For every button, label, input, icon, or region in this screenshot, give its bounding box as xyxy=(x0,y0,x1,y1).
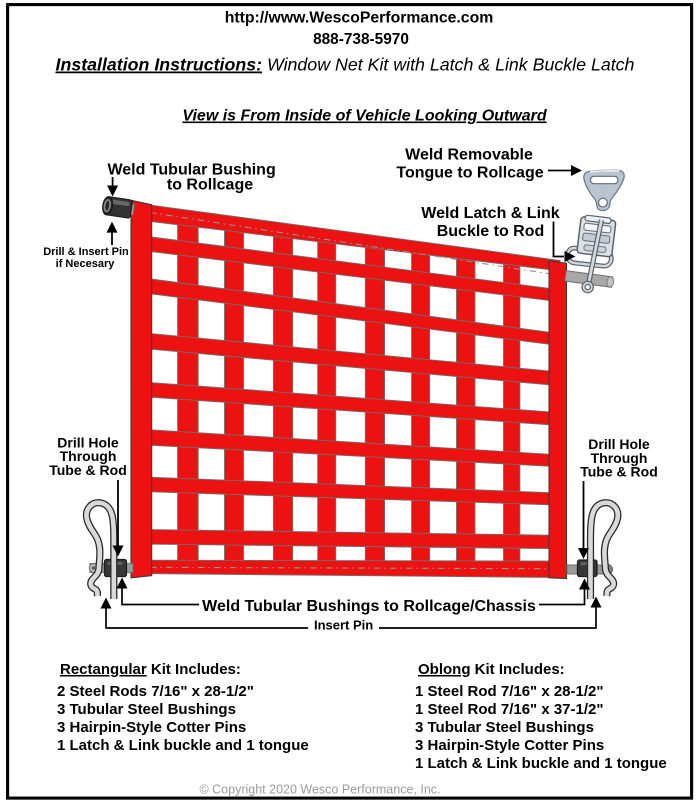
svg-text:Rectangular Kit Includes:: Rectangular Kit Includes: xyxy=(60,661,241,678)
svg-text:Oblong Kit Includes:: Oblong Kit Includes: xyxy=(418,661,565,678)
svg-text:1 Latch & Link buckle and 1 to: 1 Latch & Link buckle and 1 tongue xyxy=(415,755,667,772)
svg-text:Insert Pin: Insert Pin xyxy=(314,618,373,633)
svg-text:3 Hairpin-Style Cotter Pins: 3 Hairpin-Style Cotter Pins xyxy=(415,737,604,754)
svg-text:1 Steel Rod 7/16" x 37-1/2": 1 Steel Rod 7/16" x 37-1/2" xyxy=(415,701,603,718)
svg-text:Tube & Rod: Tube & Rod xyxy=(580,464,658,480)
svg-text:Weld Tubular Bushings to Rollc: Weld Tubular Bushings to Rollcage/Chassi… xyxy=(202,598,536,615)
svg-text:View is From Inside of Vehicle: View is From Inside of Vehicle Looking O… xyxy=(182,108,547,125)
svg-text:1 Steel Rod 7/16" x 28-1/2": 1 Steel Rod 7/16" x 28-1/2" xyxy=(415,683,603,700)
svg-text:888-738-5970: 888-738-5970 xyxy=(313,31,409,48)
svg-text:to Rollcage: to Rollcage xyxy=(167,176,253,193)
svg-text:Drill & Insert Pin: Drill & Insert Pin xyxy=(43,246,129,258)
svg-text:3 Tubular Steel Bushings: 3 Tubular Steel Bushings xyxy=(415,719,594,736)
svg-text:© Copyright 2020 Wesco Perform: © Copyright 2020 Wesco Performance, Inc. xyxy=(199,783,440,797)
svg-text:Tongue to Rollcage: Tongue to Rollcage xyxy=(396,164,543,181)
svg-text:Buckle to Rod: Buckle to Rod xyxy=(437,223,545,240)
svg-text:Weld Latch & Link: Weld Latch & Link xyxy=(421,205,559,222)
svg-text:if Necesary: if Necesary xyxy=(56,258,116,270)
svg-text:3 Hairpin-Style Cotter Pins: 3 Hairpin-Style Cotter Pins xyxy=(57,719,246,736)
svg-text:Tube & Rod: Tube & Rod xyxy=(49,462,127,478)
svg-text:Weld Removable: Weld Removable xyxy=(405,147,533,164)
svg-text:2 Steel Rods 7/16" x 28-1/2": 2 Steel Rods 7/16" x 28-1/2" xyxy=(57,683,254,700)
svg-text:Installation Instructions: Wi: Installation Instructions: Window Net Ki… xyxy=(56,55,635,75)
svg-text:1 Latch & Link buckle and 1 to: 1 Latch & Link buckle and 1 tongue xyxy=(57,737,309,754)
svg-text:3 Tubular Steel Bushings: 3 Tubular Steel Bushings xyxy=(57,701,236,718)
svg-text:http://www.WescoPerformance.co: http://www.WescoPerformance.com xyxy=(225,10,494,27)
